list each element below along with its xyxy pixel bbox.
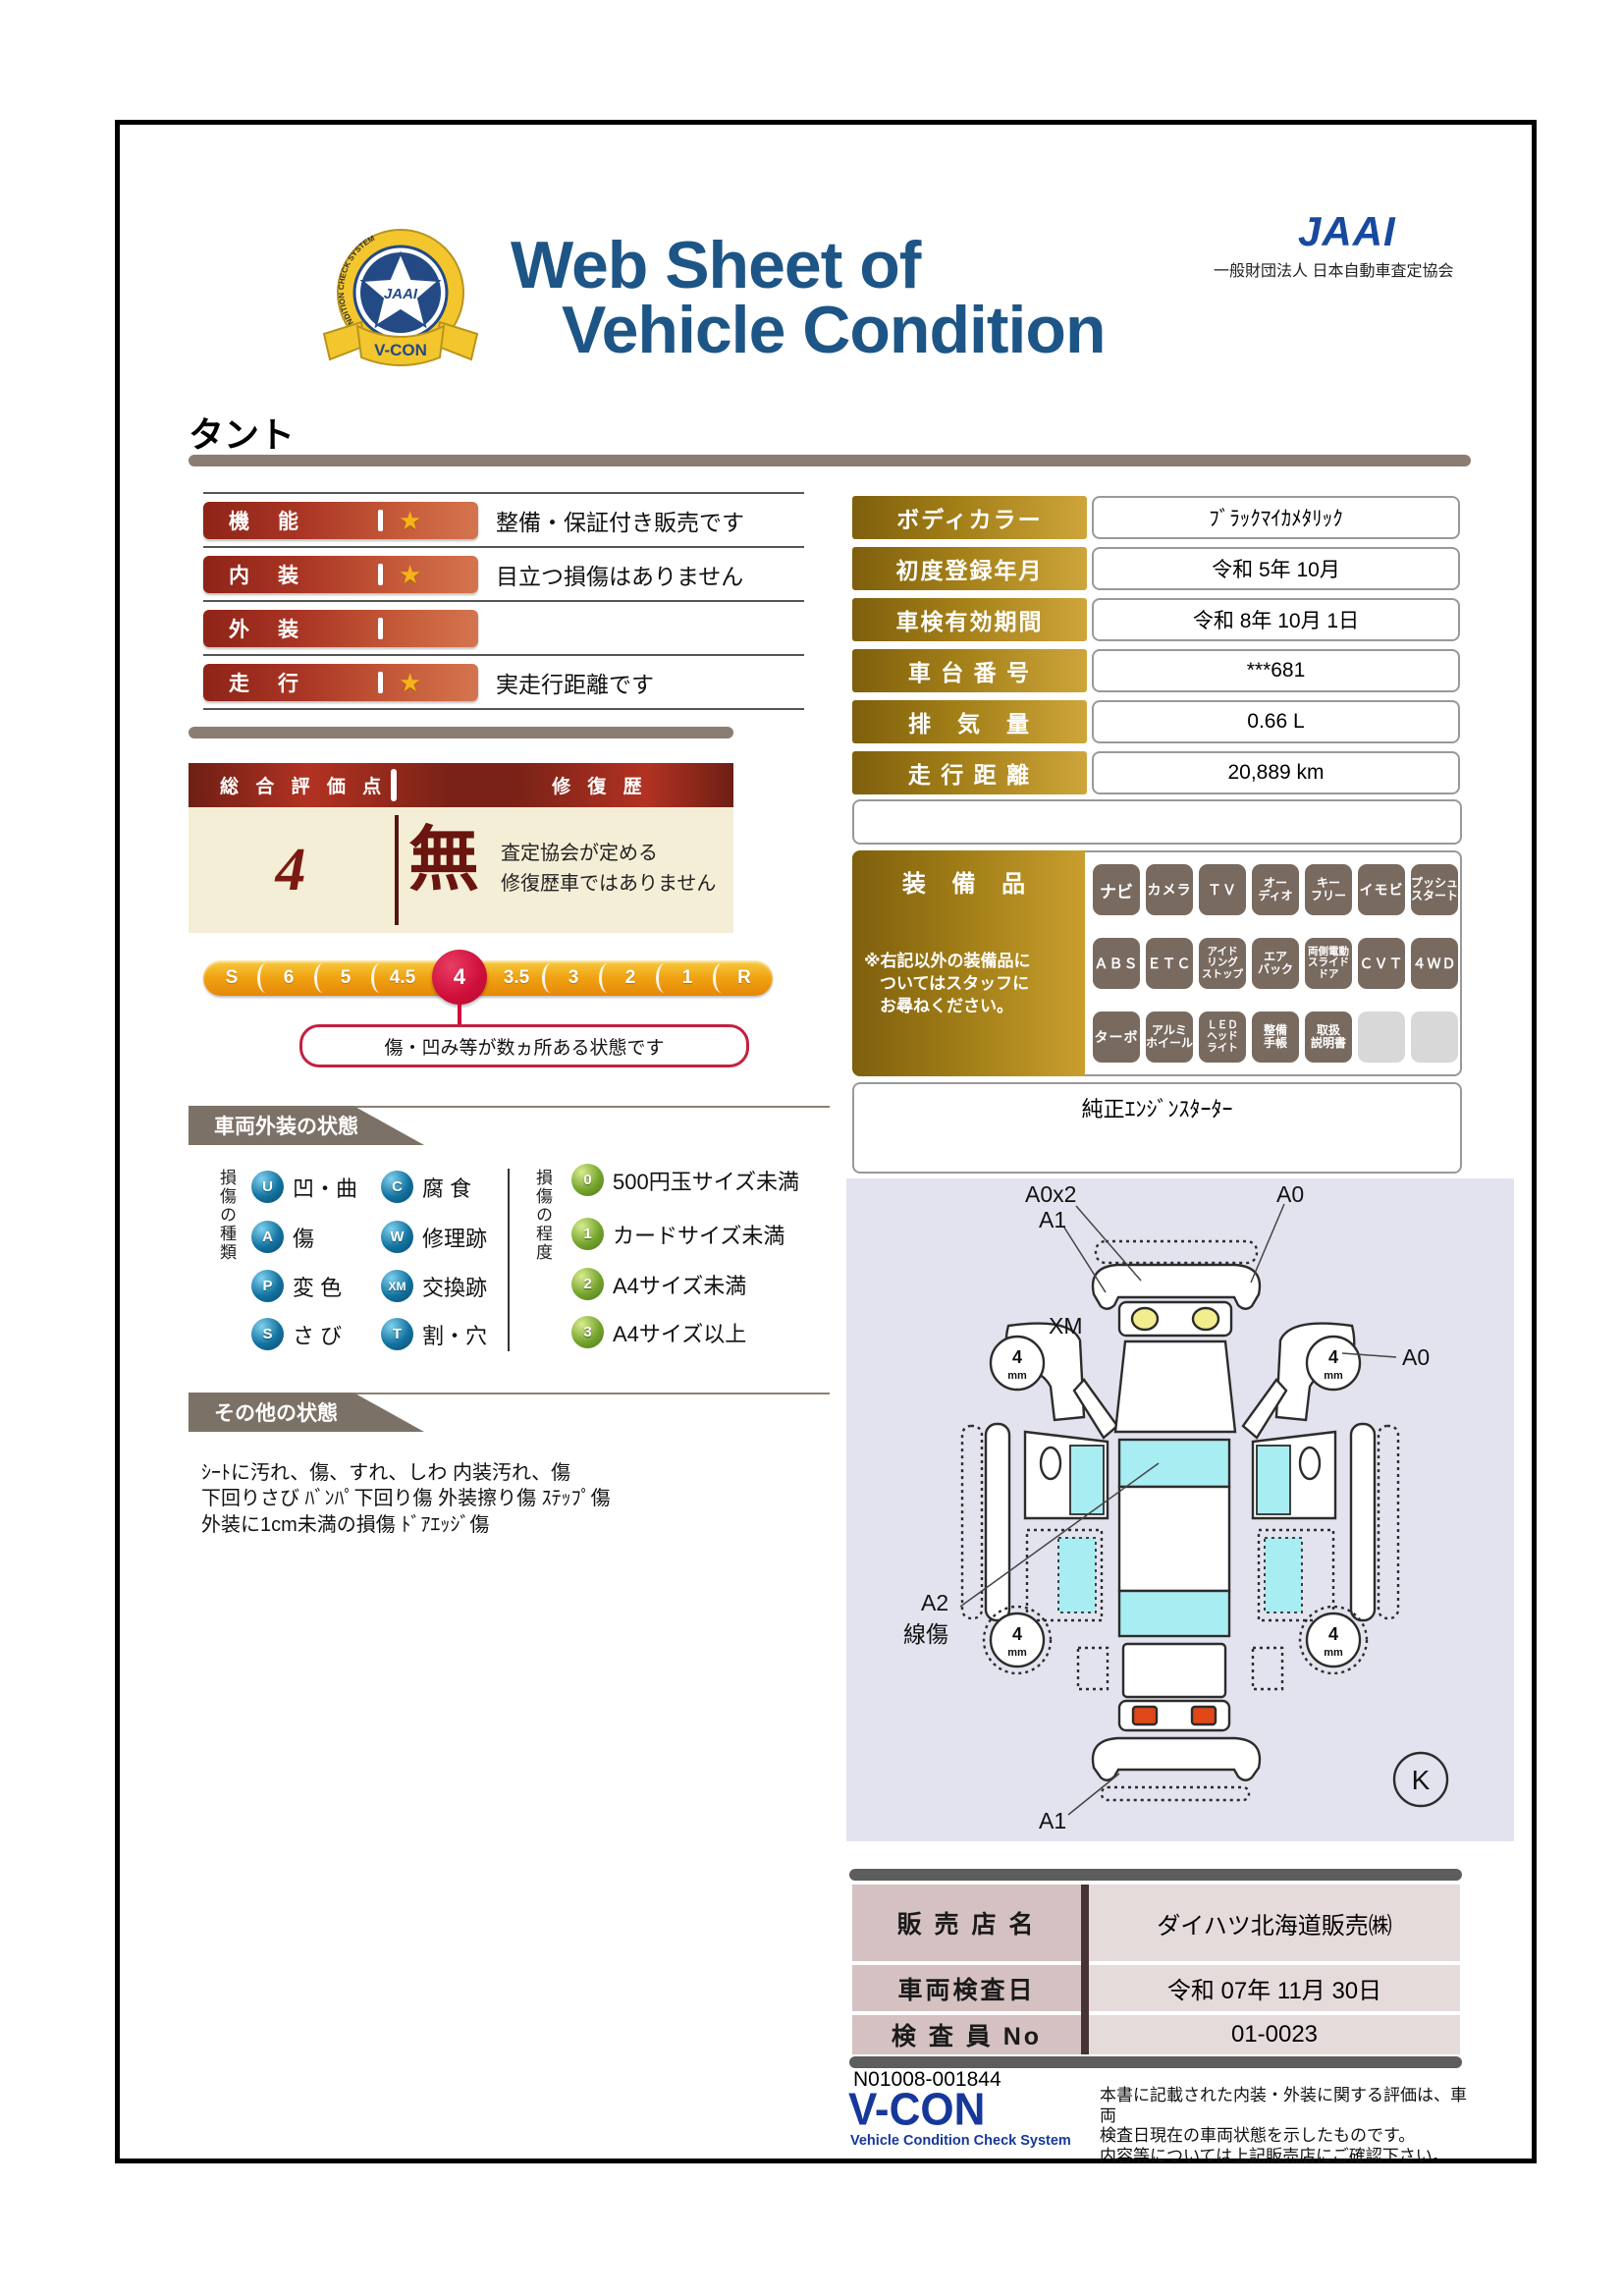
info-value-inspection-validity: 令和 8年 10月 1日: [1092, 598, 1460, 641]
damage-type-A-icon: A: [251, 1221, 284, 1253]
equip-audio: オー ディオ: [1252, 864, 1299, 915]
rating-separator: [203, 708, 804, 710]
rating-label: 走 行: [203, 668, 378, 697]
dealer-name-label: 販 売 店 名: [852, 1885, 1081, 1961]
vcon-footer-logo: V-CON: [848, 2085, 985, 2137]
equip-empty-2: [1411, 1011, 1458, 1063]
dealer-table-topbar: [849, 1869, 1462, 1881]
summary-body: 4 無 査定協会が定める 修復歴車ではありません: [189, 807, 733, 933]
vcon-badge: VEHICLE CONDITION CHECK SYSTEM JAAI V-CO…: [310, 224, 491, 377]
star-icon: ★: [399, 508, 421, 533]
scale-item-3.5: 3.5: [488, 960, 545, 996]
equip-navi: ナビ: [1093, 864, 1140, 915]
rating-separator: [203, 492, 804, 494]
damage-type-U-label: 凹・曲: [293, 1171, 357, 1203]
rating-desc: 整備・保証付き販売です: [496, 502, 820, 539]
repair-history-label: 修 復 歴: [552, 772, 648, 798]
other-line-2: 下回りさび ﾊﾞﾝﾊﾟ下回り傷 外装擦り傷 ｽﾃｯﾌﾟ傷: [201, 1486, 611, 1511]
info-value-bodycolor: ﾌﾞﾗｯｸﾏｲｶﾒﾀﾘｯｸ: [1092, 496, 1460, 539]
inspector-no-label: 検 査 員 No: [852, 2015, 1081, 2054]
selected-score-marker: 4: [432, 950, 487, 1005]
divider-bar: [189, 455, 1471, 466]
damage-degree-axis: 損傷の程度: [530, 1169, 555, 1262]
extra-equipment-box: 純正ｴﾝｼﾞﾝｽﾀｰﾀｰ: [852, 1082, 1462, 1174]
rating-row-exterior: 外 装: [203, 610, 478, 647]
rating-label: 機 能: [203, 506, 378, 535]
star-icon: ★: [399, 670, 421, 695]
jaai-logo: JAAI: [1298, 208, 1396, 255]
damage-label-wheel-right: A0: [1402, 1344, 1430, 1370]
equip-ledheadlight: ＬＥＤ ヘッド ライト: [1199, 1011, 1246, 1063]
score-callout: 傷・凹み等が数ヵ所ある状態です: [299, 1024, 749, 1067]
wheel-tread-unit: mm: [1007, 1370, 1027, 1382]
wheel-tread-value: 4: [1012, 1347, 1022, 1367]
damage-type-C-icon: C: [381, 1171, 413, 1203]
summary-header: 総 合 評 価 点 修 復 歴: [189, 763, 733, 807]
dealer-table-bottombar: [849, 2056, 1462, 2068]
pipe-divider: [378, 564, 383, 585]
rating-label: 外 装: [203, 614, 378, 643]
equip-4wd: ４ＷＤ: [1411, 938, 1458, 989]
damage-type-A-label: 傷: [293, 1221, 314, 1253]
pipe-divider: [378, 618, 383, 639]
info-label-displacement: 排 気 量: [852, 700, 1087, 743]
vehicle-condition-sheet: VEHICLE CONDITION CHECK SYSTEM JAAI V-CO…: [0, 0, 1623, 2296]
equip-etc: ＥＴＣ: [1146, 938, 1193, 989]
disclaimer-line1: 本書に記載された内装・外装に関する評価は、車両: [1100, 2086, 1468, 2126]
rating-label: 内 装: [203, 560, 378, 589]
equip-cvt: ＣＶＴ: [1358, 938, 1405, 989]
degree-2-label: A4サイズ未満: [613, 1268, 746, 1300]
score-scale: S 6 5 4.5 4 3.5 3 2 1 R: [203, 960, 773, 996]
equipment-note-line1: ※右記以外の装備品に: [864, 951, 1031, 973]
equipment-note-line2: ついてはスタッフに: [880, 973, 1031, 996]
rating-separator: [203, 546, 804, 548]
wheel-tread-value: 4: [1328, 1624, 1338, 1644]
divider-bar: [189, 727, 733, 738]
damage-type-W-icon: W: [381, 1221, 413, 1253]
inspector-no-value: 01-0023: [1089, 2015, 1460, 2054]
repair-history-value: 無: [408, 825, 479, 896]
damage-label-front-top: A0x2: [1025, 1181, 1076, 1207]
equip-turbo: ターボ: [1093, 1011, 1140, 1063]
equip-camera: カメラ: [1146, 864, 1193, 915]
damage-type-S-label: さ び: [293, 1318, 342, 1350]
equip-abs: ＡＢＳ: [1093, 938, 1140, 989]
damage-type-S-icon: S: [251, 1318, 284, 1350]
degree-3-icon: 3: [571, 1316, 604, 1348]
scale-separator: [599, 963, 617, 993]
repair-desc-line2: 修復歴車ではありません: [501, 869, 716, 900]
vcon-footer-subtitle: Vehicle Condition Check System: [850, 2133, 1071, 2149]
rating-row-mileage: 走 行 ★: [203, 664, 478, 701]
equip-pushstart: プッシュ スタート: [1411, 864, 1458, 915]
rating-row-function: 機 能 ★: [203, 502, 478, 539]
info-label-first-registration: 初度登録年月: [852, 547, 1087, 590]
extra-equipment-text: 純正ｴﾝｼﾞﾝｽﾀｰﾀｰ: [854, 1092, 1460, 1123]
damage-type-axis: 損傷の種類: [214, 1169, 239, 1262]
damage-type-P-label: 変 色: [293, 1270, 342, 1302]
dealer-table-divider: [1081, 1885, 1089, 2054]
scale-separator: [542, 963, 560, 993]
equipment-title: 装 備 品: [852, 864, 1085, 899]
wheel-tread-unit: mm: [1007, 1647, 1027, 1659]
damage-label-fender-xm: XM: [1049, 1313, 1083, 1339]
rating-desc: [496, 610, 820, 647]
degree-0-icon: 0: [571, 1164, 604, 1196]
equip-empty-1: [1358, 1011, 1405, 1063]
disclaimer-line3: 内容等については上記販売店にご確認下さい。: [1100, 2147, 1468, 2167]
info-label-inspection-validity: 車検有効期間: [852, 598, 1087, 641]
pipe-divider: [378, 510, 383, 531]
info-label-bodycolor: ボディカラー: [852, 496, 1087, 539]
equip-immobilizer: イモビ: [1358, 864, 1405, 915]
repair-history-desc: 査定協会が定める 修復歴車ではありません: [501, 839, 716, 900]
equip-tv: ＴＶ: [1199, 864, 1246, 915]
repair-desc-line1: 査定協会が定める: [501, 839, 716, 869]
info-label-chassis-no: 車 台 番 号: [852, 649, 1087, 692]
degree-1-label: カードサイズ未満: [613, 1218, 784, 1250]
degree-3-label: A4サイズ以上: [613, 1316, 746, 1348]
info-label-mileage: 走 行 距 離: [852, 751, 1087, 794]
info-value-chassis-no: ***681: [1092, 649, 1460, 692]
legend-divider: [508, 1169, 510, 1351]
badge-banner: V-CON: [374, 341, 427, 359]
wheel-tread-unit: mm: [1324, 1370, 1343, 1382]
equip-alloywheel: アルミ ホイール: [1146, 1011, 1193, 1063]
wheel-tread-unit: mm: [1324, 1647, 1343, 1659]
summary-vertical-divider: [395, 815, 399, 925]
damage-type-T-icon: T: [381, 1318, 413, 1350]
pipe-divider: [378, 672, 383, 693]
rating-row-interior: 内 装 ★: [203, 556, 478, 593]
equip-idlingstop: アイド リング ストップ: [1199, 938, 1246, 989]
damage-label-front-left: A1: [1039, 1207, 1066, 1232]
equip-keyfree: キー フリー: [1305, 864, 1352, 915]
wheel-tread-value: 4: [1012, 1624, 1022, 1644]
equip-airbag: エア バック: [1252, 938, 1299, 989]
scale-separator: [713, 963, 730, 993]
damage-type-C-label: 腐 食: [422, 1171, 471, 1203]
header-divider: [391, 769, 397, 801]
car-damage-diagram: 4 mm 4 mm 4 mm 4 mm A0x2 A1 A0 XM A0 A2 …: [846, 1178, 1514, 1841]
info-value-mileage: 20,889 km: [1092, 751, 1460, 794]
rating-desc: 目立つ損傷はありません: [496, 556, 820, 593]
degree-2-icon: 2: [571, 1268, 604, 1300]
other-condition-text: ｼｰﾄに汚れ、傷、すれ、しわ 内装汚れ、傷 下回りさび ﾊﾞﾝﾊﾟ下回り傷 外装…: [201, 1460, 611, 1538]
overall-score-label: 総 合 評 価 点: [220, 772, 387, 798]
damage-label-roof: A2: [921, 1590, 948, 1615]
vehicle-name: タント: [189, 407, 295, 458]
dealer-name-value: ダイハツ北海道販売㈱: [1089, 1885, 1460, 1961]
grade-k-letter: K: [1412, 1765, 1431, 1795]
damage-type-U-icon: U: [251, 1171, 284, 1203]
page-title-line2: Vehicle Condition: [562, 297, 1106, 363]
equipment-note-line3: お尋ねください。: [880, 996, 1031, 1018]
overall-score-value: 4: [189, 807, 393, 933]
equipment-note: ※右記以外の装備品に ついてはスタッフに お尋ねください。: [864, 951, 1031, 1018]
disclaimer-line2: 検査日現在の車両状態を示したものです。: [1100, 2126, 1468, 2147]
star-icon: ★: [399, 562, 421, 587]
scale-separator: [257, 963, 275, 993]
scale-item-S: S: [203, 960, 260, 996]
wheel-tread-value: 4: [1328, 1347, 1338, 1367]
equip-servicebook: 整備 手帳: [1252, 1011, 1299, 1063]
damage-type-XM-icon: XM: [381, 1270, 413, 1302]
other-line-3: 外装に1cm未満の損傷 ﾄﾞｱｴｯｼﾞ傷: [201, 1512, 611, 1538]
degree-0-label: 500円玉サイズ未満: [613, 1164, 799, 1196]
scale-separator: [371, 963, 389, 993]
damage-label-roof-sub: 線傷: [903, 1621, 948, 1647]
damage-type-XM-label: 交換跡: [422, 1270, 487, 1302]
equip-manual: 取扱 説明書: [1305, 1011, 1352, 1063]
other-line-1: ｼｰﾄに汚れ、傷、すれ、しわ 内装汚れ、傷: [201, 1460, 611, 1486]
page-title-line1: Web Sheet of: [511, 232, 920, 299]
scale-separator: [656, 963, 674, 993]
damage-type-P-icon: P: [251, 1270, 284, 1302]
damage-type-T-label: 割・穴: [422, 1318, 487, 1350]
callout-stem: [458, 1004, 461, 1025]
info-value-displacement: 0.66 L: [1092, 700, 1460, 743]
inspection-date-value: 令和 07年 11月 30日: [1089, 1965, 1460, 2011]
rating-desc: 実走行距離です: [496, 664, 820, 701]
damage-label-rear: A1: [1039, 1808, 1066, 1833]
badge-org: JAAI: [384, 286, 418, 302]
damage-label-front-right: A0: [1276, 1181, 1304, 1207]
rating-separator: [203, 654, 804, 656]
disclaimer-text: 本書に記載された内装・外装に関する評価は、車両 検査日現在の車両状態を示したもの…: [1100, 2086, 1468, 2167]
scale-separator: [314, 963, 332, 993]
info-empty-row: [852, 799, 1462, 845]
inspection-date-label: 車両検査日: [852, 1965, 1081, 2011]
equip-powerslidedoor: 両側電動 スライド ドア: [1305, 938, 1352, 989]
damage-type-W-label: 修理跡: [422, 1221, 487, 1253]
rating-separator: [203, 600, 804, 602]
info-value-first-registration: 令和 5年 10月: [1092, 547, 1460, 590]
degree-1-icon: 1: [571, 1218, 604, 1250]
jaai-subtitle: 一般財団法人 日本自動車査定協会: [1214, 257, 1453, 281]
equipment-gold-panel: 装 備 品 ※右記以外の装備品に ついてはスタッフに お尋ねください。: [852, 850, 1085, 1076]
